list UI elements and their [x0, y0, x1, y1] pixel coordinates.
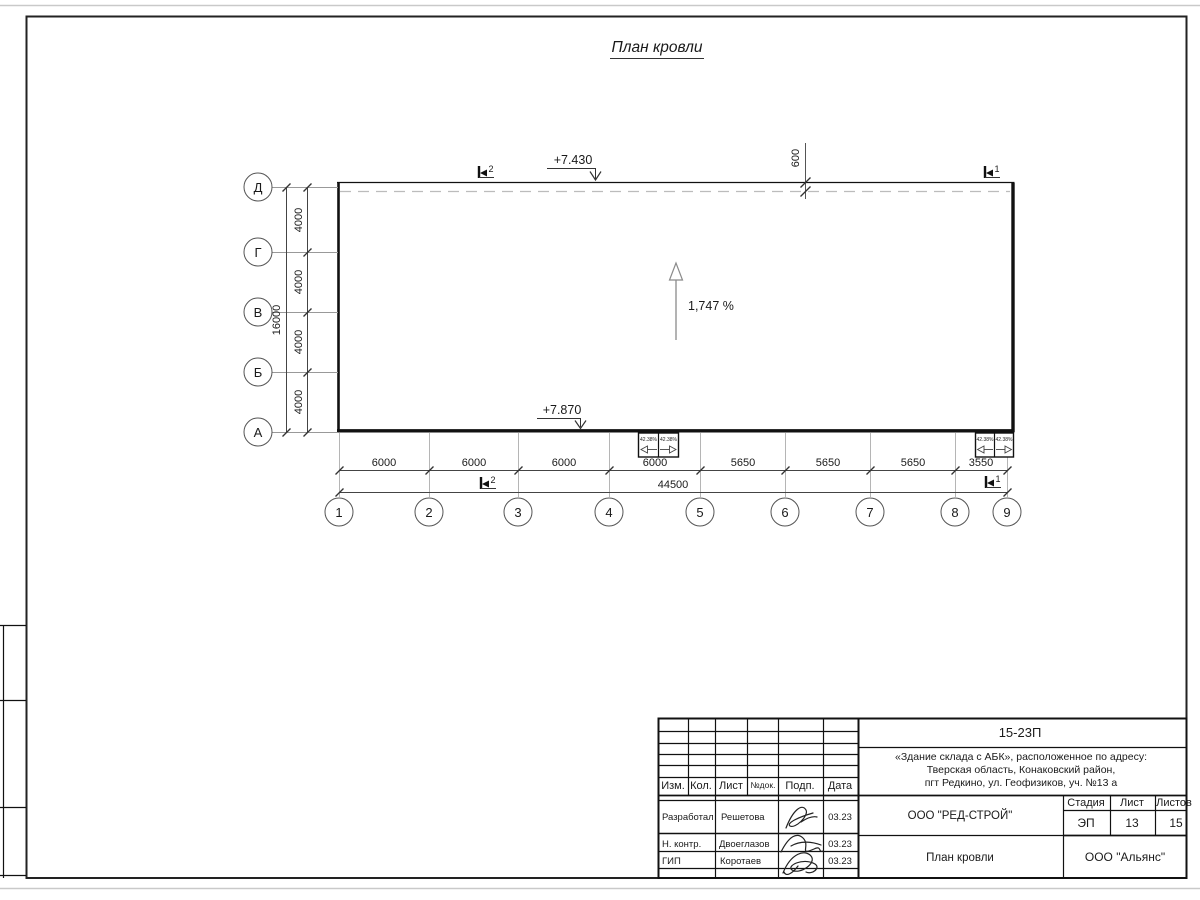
axis-col-5: 5	[696, 505, 703, 520]
dim-col-2: 6000	[462, 457, 486, 469]
drawing-sheet: План кровли 16000 4000 4000 4000 4000	[0, 0, 1200, 900]
tb-name-developer: Решетова	[721, 812, 765, 823]
sheet-title: План кровли	[612, 39, 703, 56]
svg-text:2: 2	[488, 164, 493, 174]
dim-col-5: 5650	[731, 457, 755, 469]
signature-ncontrol	[781, 835, 823, 852]
axis-col-1: 1	[335, 505, 342, 520]
dim-col-total: 44500	[658, 479, 689, 491]
elevation-mark-top: +7.430	[547, 153, 601, 180]
axis-row-g: Г	[254, 245, 261, 260]
tb-stage-label: Стадия	[1067, 797, 1105, 809]
tb-header-kol: Кол.	[690, 780, 712, 792]
dim-col-7: 5650	[901, 457, 925, 469]
dim-col-1: 6000	[372, 457, 396, 469]
column-axis-bubbles: 1 2 3 4 5 6 7 8 9	[325, 498, 1021, 526]
elevation-mark-bottom: +7.870	[537, 403, 586, 429]
dim-row-total: 16000	[271, 305, 283, 336]
axis-row-d: Д	[254, 180, 263, 195]
svg-text:+7.430: +7.430	[554, 153, 593, 167]
tb-date-gip: 03.23	[828, 856, 852, 867]
tb-sheet-value: 13	[1125, 816, 1139, 830]
axis-col-3: 3	[514, 505, 521, 520]
tb-header-data: Дата	[828, 780, 853, 792]
tb-role-gip: ГИП	[662, 856, 681, 867]
dim-col-4: 6000	[643, 457, 667, 469]
tb-sheets-value: 15	[1169, 816, 1183, 830]
dim-row-3: 4000	[293, 330, 305, 354]
roof-plan-drawing: План кровли 16000 4000 4000 4000 4000	[0, 0, 1200, 900]
tb-header-list: Лист	[719, 780, 743, 792]
section-mark-2-top: 2	[479, 164, 494, 178]
svg-text:1: 1	[995, 474, 1000, 484]
svg-text:2: 2	[490, 475, 495, 485]
svg-text:42.38%: 42.38%	[996, 437, 1014, 443]
drain-funnel-a: 42.38% 42.38%	[639, 433, 679, 457]
axis-col-9: 9	[1003, 505, 1010, 520]
svg-text:42.38%: 42.38%	[640, 437, 658, 443]
tb-sheets-label: Листов	[1156, 797, 1192, 809]
axis-row-v: В	[254, 305, 263, 320]
axis-col-2: 2	[425, 505, 432, 520]
section-mark-2-bottom: 2	[481, 475, 496, 489]
signature-developer	[786, 807, 817, 828]
tb-stage-value: ЭП	[1077, 816, 1094, 830]
dim-col-3: 6000	[552, 457, 576, 469]
tb-role-developer: Разработал	[662, 812, 714, 823]
drain-funnel-b: 42.38% 42.38%	[976, 433, 1014, 457]
tb-org: ООО "РЕД-СТРОЙ"	[908, 809, 1013, 822]
axis-col-7: 7	[866, 505, 873, 520]
svg-text:42.38%: 42.38%	[977, 437, 995, 443]
tb-name-gip: Коротаев	[720, 856, 761, 867]
svg-text:1: 1	[994, 164, 999, 174]
dim-row-4: 4000	[293, 390, 305, 414]
svg-text:600: 600	[790, 149, 802, 167]
axis-col-4: 4	[605, 505, 612, 520]
tb-drawing-name: План кровли	[926, 852, 994, 864]
title-block: Изм. Кол. Лист №док. Подп. Дата Разработ…	[658, 718, 1192, 878]
signature-gip	[783, 853, 817, 875]
tb-project-line1: «Здание склада с АБК», расположенное по …	[895, 751, 1147, 763]
dim-col-8: 3550	[969, 457, 993, 469]
row-axis-bubbles: Д Г В Б А	[244, 173, 272, 446]
axis-row-b: Б	[254, 365, 263, 380]
tb-header-podp: Подп.	[785, 780, 814, 792]
parapet-dimension-600: 600	[790, 143, 811, 199]
section-mark-1-bottom: 1	[986, 474, 1001, 488]
axis-col-8: 8	[951, 505, 958, 520]
dim-col-6: 5650	[816, 457, 840, 469]
tb-header-izm: Изм.	[661, 780, 685, 792]
tb-doc-number: 15-23П	[999, 725, 1042, 740]
tb-header-ndok: №док.	[751, 780, 776, 790]
tb-sheet-label: Лист	[1120, 797, 1144, 809]
tb-date-developer: 03.23	[828, 812, 852, 823]
tb-name-ncontrol: Двоеглазов	[719, 839, 770, 850]
slope-arrow	[670, 263, 683, 340]
svg-text:+7.870: +7.870	[543, 403, 582, 417]
svg-text:42.38%: 42.38%	[660, 437, 678, 443]
tb-contractor: ООО "Альянс"	[1085, 850, 1165, 864]
tb-date-ncontrol: 03.23	[828, 839, 852, 850]
tb-project-line2: Тверская область, Конаковский район,	[927, 764, 1116, 776]
slope-label: 1,747 %	[688, 299, 734, 313]
axis-row-a: А	[254, 425, 263, 440]
tb-role-ncontrol: Н. контр.	[662, 839, 701, 850]
dim-row-1: 4000	[293, 208, 305, 232]
axis-col-6: 6	[781, 505, 788, 520]
tb-project-line3: пгт Редкино, ул. Геофизиков, уч. №13 а	[925, 777, 1118, 789]
section-mark-1-top: 1	[985, 164, 1000, 178]
dim-row-2: 4000	[293, 270, 305, 294]
left-margin-table	[0, 625, 26, 878]
